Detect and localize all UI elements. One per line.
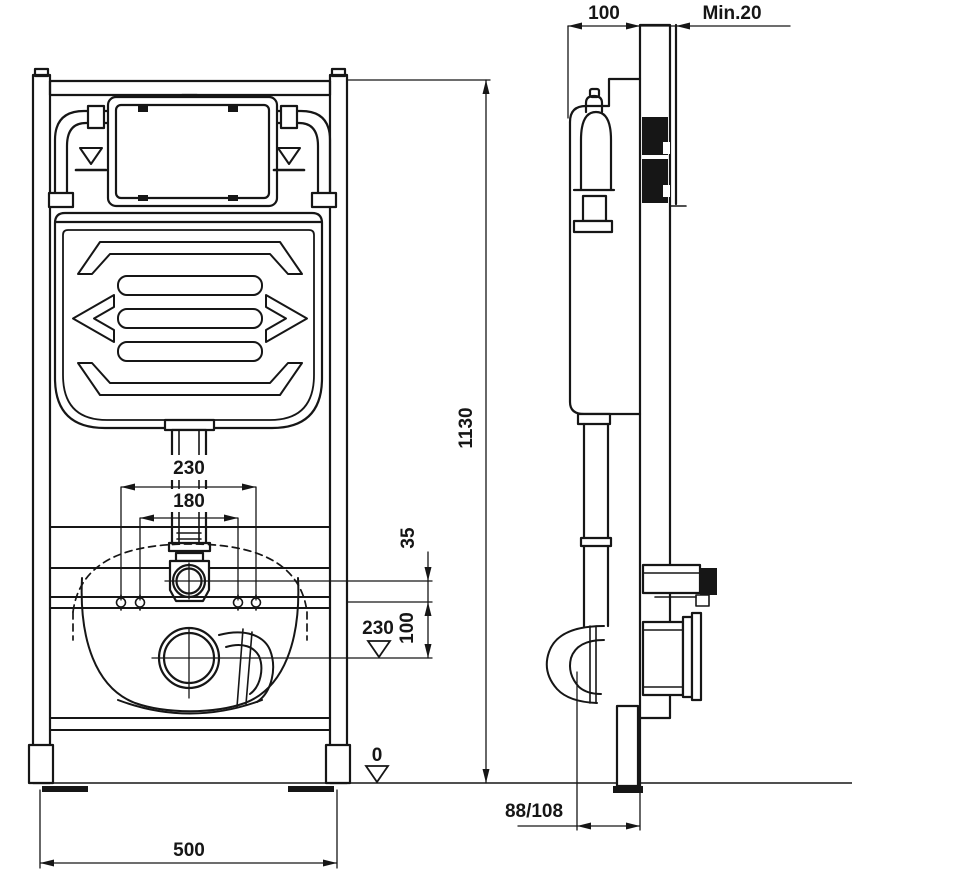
flush-pipe [165, 420, 214, 551]
flush-pipe-side [578, 414, 611, 626]
drain-elbow [547, 626, 604, 703]
dim-supply-offset: 35 [398, 527, 419, 549]
level-marker-icon [368, 641, 390, 657]
side-foot-plate [613, 786, 643, 793]
wall-bracket [642, 117, 670, 203]
dim-bolt-spacing-outer: 230 [173, 458, 205, 479]
dim-outlet-level: 230 [362, 618, 394, 639]
level-marker-icon [274, 148, 304, 170]
dim-outlet-wall-distance: 88/108 [505, 801, 563, 822]
technical-drawing: 1130 500 230 180 [0, 0, 964, 882]
level-marker-icon [366, 766, 388, 782]
top-crossbar [50, 81, 330, 95]
anchor-plate-right [288, 786, 334, 792]
frame-rail-left [33, 75, 50, 783]
side-leg [617, 706, 638, 786]
outlet-socket [643, 613, 701, 700]
foot-sleeve-left [29, 745, 53, 783]
cistern-side [570, 79, 640, 414]
corner-tube-left [49, 106, 107, 207]
installation-drawing-canvas: 1130 500 230 180 [0, 0, 964, 882]
foot-sleeve-right [326, 745, 350, 783]
dim-rail-to-outlet: 100 [397, 612, 418, 644]
dim-frame-width: 500 [173, 840, 205, 861]
rail-cap-right [332, 69, 345, 76]
dim-min-clearance: Min.20 [702, 3, 761, 24]
dim-total-height: 1130 [456, 407, 477, 448]
dim-frame-depth: 100 [588, 3, 620, 24]
side-view [547, 25, 717, 793]
outlet-circle [159, 628, 219, 698]
rail-cap-left [35, 69, 48, 76]
dim-floor-level: 0 [372, 745, 383, 766]
dim-right-vertical-lines [425, 552, 432, 658]
flush-plate-opening [108, 97, 277, 206]
dim-bolt-spacing-inner: 180 [173, 491, 205, 512]
supply-connector [170, 553, 209, 601]
frame-rail-right [330, 75, 347, 783]
front-view [29, 69, 350, 792]
bottom-crossbar [50, 718, 330, 730]
level-marker-icon [76, 148, 106, 170]
cistern [55, 213, 322, 428]
anchor-plate-left [42, 786, 88, 792]
